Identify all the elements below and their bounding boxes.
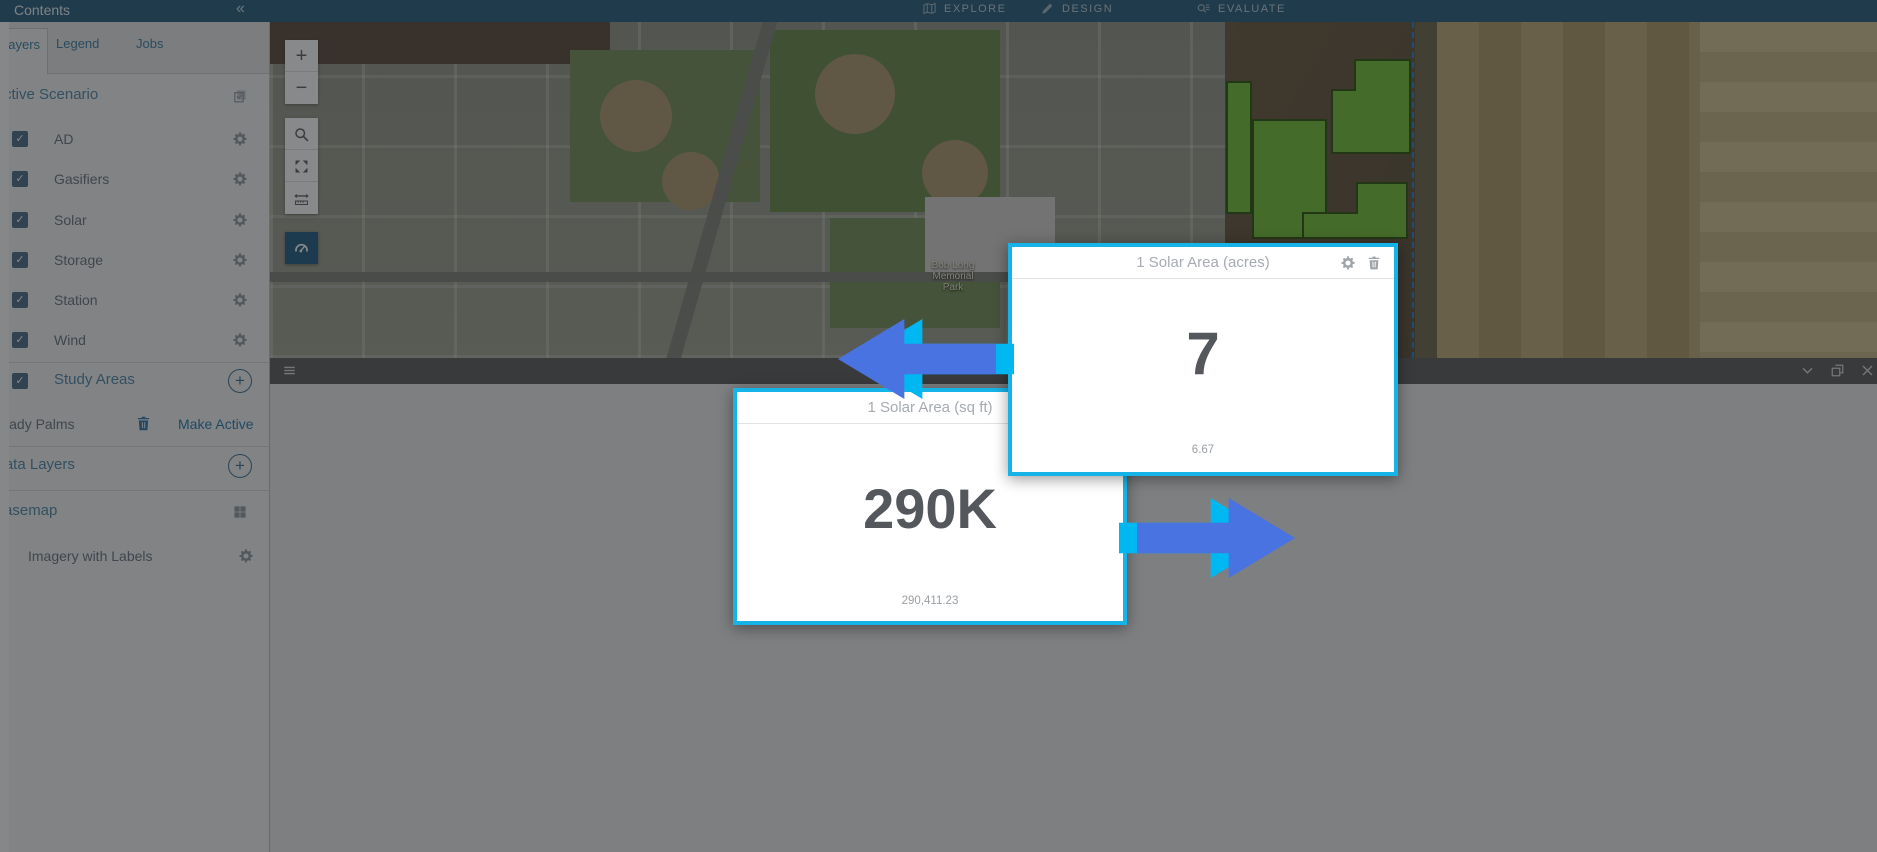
card-solar-area-acres[interactable]: 1 Solar Area (acres) 7 6.67 bbox=[1008, 243, 1398, 476]
indicator-footer: 6.67 bbox=[1012, 444, 1394, 456]
trash-icon[interactable] bbox=[1366, 255, 1382, 271]
app-window: Contents « EXPLORE DESIGN EVALUATE Layer… bbox=[0, 0, 1877, 852]
indicator-value: 290K bbox=[737, 476, 1123, 541]
tutorial-arrow-right bbox=[1137, 498, 1295, 578]
indicator-value: 7 bbox=[1012, 319, 1394, 388]
tutorial-arrow-left bbox=[838, 319, 996, 399]
indicator-footer: 290,411.23 bbox=[737, 595, 1123, 607]
card-title: 1 Solar Area (acres) bbox=[1012, 247, 1394, 279]
gear-icon[interactable] bbox=[1340, 255, 1356, 271]
